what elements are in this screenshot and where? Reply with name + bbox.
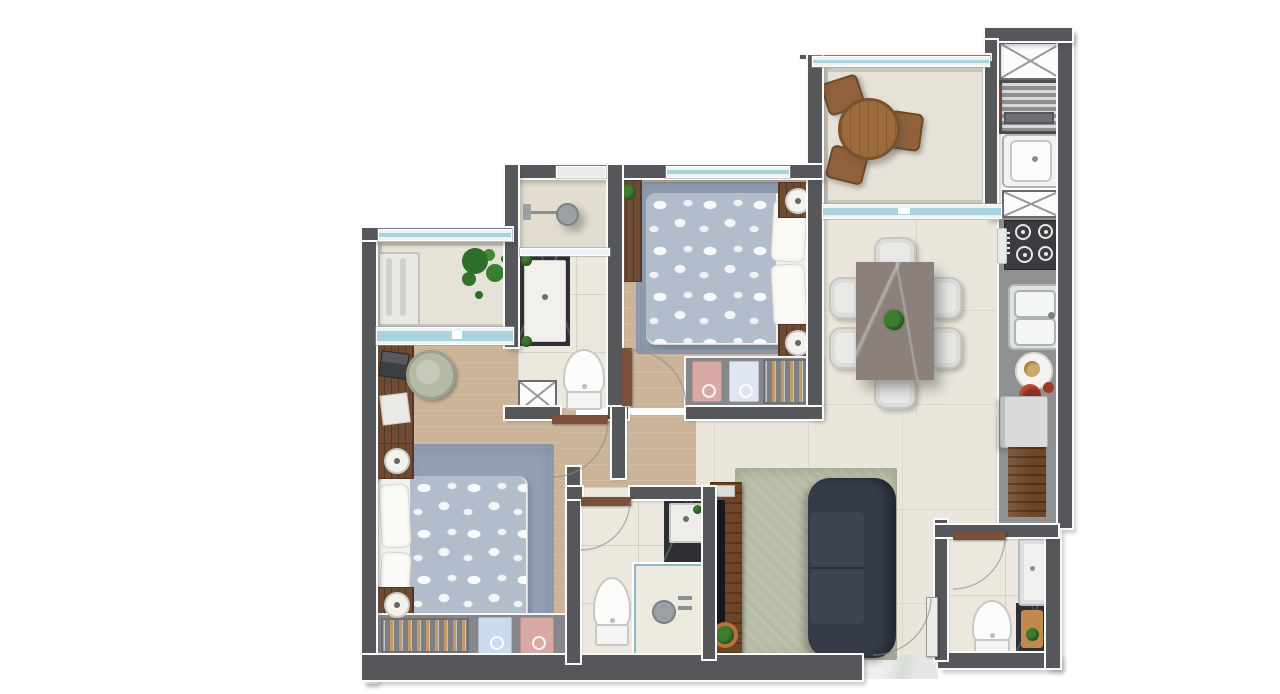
wall-ensuite-bedroom2-divider bbox=[608, 165, 622, 419]
soundbar bbox=[713, 485, 735, 497]
ensuite-shower-glass bbox=[520, 248, 610, 256]
bedroom2-bed-duvet bbox=[646, 193, 776, 343]
sofa-seat bbox=[810, 512, 864, 624]
laptop bbox=[378, 350, 409, 380]
folded-shirt-pink bbox=[520, 617, 554, 654]
shower-head bbox=[556, 203, 579, 226]
bedroom2-shelf-plant bbox=[620, 184, 636, 200]
left-balcony-sliding-door bbox=[376, 327, 514, 345]
desk-chair-cushion bbox=[416, 360, 440, 384]
desk-papers bbox=[379, 392, 410, 425]
red-bowl bbox=[1043, 382, 1054, 393]
folded-shirt-blue bbox=[478, 617, 512, 654]
ensuite-vanity-counter bbox=[524, 260, 566, 342]
folded-shirt-pink bbox=[692, 361, 722, 402]
grill-tray bbox=[1004, 112, 1054, 124]
ensuite-faucet bbox=[542, 294, 548, 300]
refrigerator bbox=[1000, 396, 1048, 448]
left-balcony-window bbox=[378, 229, 512, 241]
service-bath-door bbox=[953, 531, 1006, 540]
wall-left-exterior bbox=[362, 226, 376, 682]
balcony-sliding-door bbox=[822, 204, 1002, 219]
grill bbox=[999, 80, 1065, 134]
master-wardrobe-hangers bbox=[381, 618, 469, 653]
balcony-guardrail-glass bbox=[812, 56, 990, 67]
sliding-door-pane-step bbox=[898, 208, 910, 214]
bath2-faucet bbox=[683, 516, 689, 522]
balcony-round-table bbox=[838, 98, 900, 160]
ensuite-toilet-tank bbox=[566, 391, 602, 410]
hall-floor bbox=[560, 415, 696, 487]
master-bed-duvet bbox=[410, 476, 526, 628]
dish-towel bbox=[997, 228, 1007, 264]
dining-chair bbox=[931, 277, 962, 319]
balcony-plant bbox=[462, 248, 488, 274]
bedroom2-window bbox=[666, 166, 790, 178]
bedroom2-door bbox=[622, 348, 632, 406]
wall-utility-top bbox=[985, 28, 1072, 41]
wall-hall-nub bbox=[612, 407, 625, 478]
ac-unit-rib bbox=[386, 258, 392, 316]
wall-right-lower-exterior bbox=[1046, 525, 1060, 668]
bath2-shower-head bbox=[652, 600, 676, 624]
wall-balcony-left bbox=[808, 55, 822, 417]
sink-faucet bbox=[1048, 312, 1055, 319]
sliding-door-pane-step bbox=[452, 331, 462, 339]
ensuite-window bbox=[556, 166, 606, 178]
wall-bath2-top-stub bbox=[567, 487, 582, 499]
duct-shaft-small bbox=[1002, 190, 1060, 218]
bath2-shower-mixer bbox=[678, 596, 692, 600]
bedroom2-pillow bbox=[770, 263, 807, 327]
wall-bedroom2-bottom bbox=[686, 407, 822, 419]
service-plant bbox=[1026, 628, 1039, 641]
wall-right-upper-exterior bbox=[1058, 28, 1072, 528]
wall-ensuite-left bbox=[505, 165, 518, 347]
wall-bottom-right-exterior bbox=[938, 653, 1060, 668]
ensuite-door bbox=[552, 415, 608, 424]
cooktop-burner bbox=[1038, 246, 1053, 261]
cooktop-burner bbox=[1015, 224, 1031, 240]
grill-accent bbox=[997, 86, 1002, 122]
laundry-tank-faucet bbox=[1032, 156, 1038, 162]
ac-unit-rib bbox=[400, 258, 406, 316]
cooktop-knobs bbox=[1007, 232, 1010, 254]
cooktop-burner bbox=[1038, 224, 1053, 239]
dining-chair bbox=[931, 327, 962, 369]
service-shower-drain bbox=[1030, 566, 1035, 571]
duct-shaft-top bbox=[999, 42, 1062, 80]
laundry-tank-basin bbox=[1010, 140, 1052, 182]
bath2-toilet-tank bbox=[595, 624, 629, 646]
master-bed-pillow bbox=[378, 483, 411, 548]
kitchen-wood-counter bbox=[1008, 447, 1046, 517]
dining-chair bbox=[874, 378, 916, 409]
console-plant bbox=[716, 626, 734, 644]
bath2-plant bbox=[693, 505, 702, 514]
ensuite-plant bbox=[521, 255, 532, 266]
shower-valve bbox=[523, 204, 531, 220]
master-lamp-bottom bbox=[384, 592, 410, 618]
floor-plan-canvas bbox=[0, 0, 1280, 694]
plate-food bbox=[1024, 361, 1040, 377]
wall-bottom-exterior bbox=[362, 655, 862, 680]
folded-shirt-white bbox=[729, 361, 759, 402]
ensuite-plant bbox=[521, 336, 532, 347]
tv bbox=[717, 500, 725, 640]
master-lamp-top bbox=[384, 448, 410, 474]
entry-door bbox=[926, 597, 938, 657]
bath2-door bbox=[581, 497, 631, 506]
ac-bench-unit bbox=[378, 252, 420, 326]
cooktop-burner bbox=[1016, 246, 1033, 263]
sink-basin bbox=[1014, 318, 1056, 346]
wall-bath2-right bbox=[703, 487, 715, 659]
dining-centerpiece-plant bbox=[884, 310, 904, 330]
